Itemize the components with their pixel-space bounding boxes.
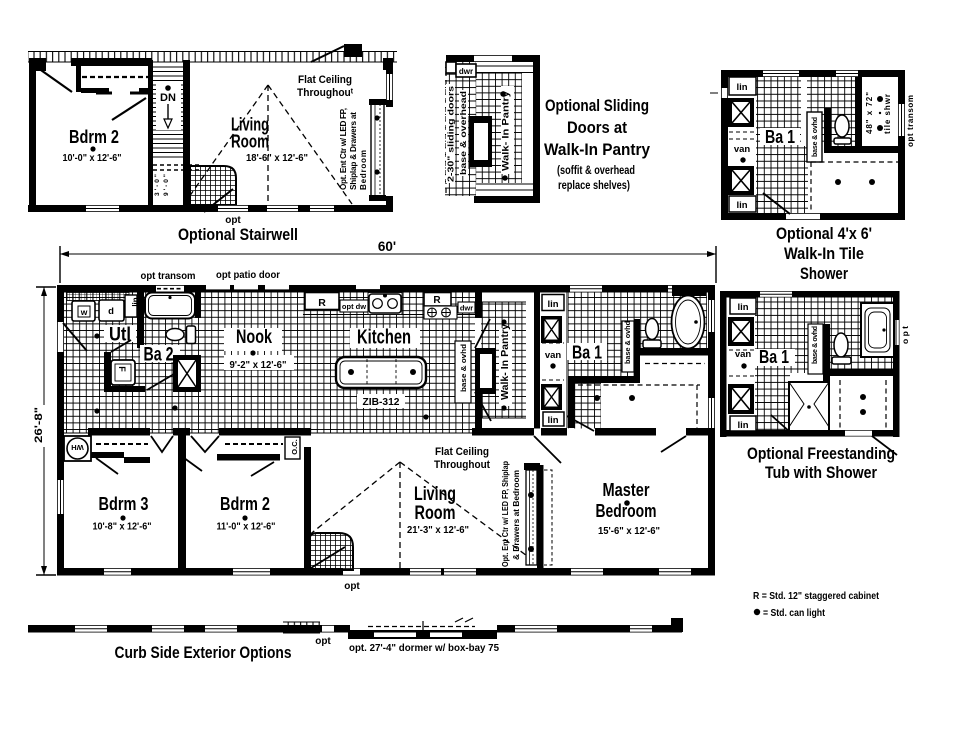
- svg-text:base & ovhd: base & ovhd: [812, 117, 819, 157]
- svg-text:Ba 1: Ba 1: [765, 127, 795, 147]
- svg-text:60': 60': [378, 239, 396, 254]
- svg-text:9'-0": 9'-0": [163, 174, 170, 196]
- svg-text:9'-2" x 12'-6": 9'-2" x 12'-6": [230, 360, 287, 371]
- svg-text:= Std. can light: = Std. can light: [763, 607, 825, 619]
- svg-text:base & ovhd: base & ovhd: [625, 321, 632, 364]
- svg-text:Ba 1: Ba 1: [572, 343, 602, 363]
- svg-text:Optional Freestanding: Optional Freestanding: [747, 444, 895, 463]
- svg-text:R: R: [318, 297, 326, 309]
- svg-text:26'-8": 26'-8": [33, 407, 45, 443]
- svg-text:F: F: [117, 366, 127, 372]
- svg-text:Master: Master: [603, 479, 650, 500]
- svg-text:ZIB-312: ZIB-312: [363, 396, 400, 408]
- svg-text:lin: lin: [547, 299, 558, 310]
- svg-text:Ba 1: Ba 1: [759, 347, 789, 367]
- svg-text:Kitchen: Kitchen: [357, 327, 411, 349]
- svg-text:Bdrm 2: Bdrm 2: [220, 493, 270, 514]
- svg-text:18'-6" x 12'-6": 18'-6" x 12'-6": [246, 153, 308, 164]
- svg-text:opt: opt: [225, 215, 241, 226]
- svg-text:tile shwr: tile shwr: [883, 94, 892, 134]
- svg-text:dwr: dwr: [459, 67, 473, 76]
- svg-text:replace shelves): replace shelves): [558, 180, 630, 192]
- svg-text:opt transom: opt transom: [141, 271, 196, 282]
- svg-text:d: d: [108, 306, 114, 317]
- svg-text:& Drawers at Bedroom: & Drawers at Bedroom: [512, 470, 521, 560]
- svg-text:Ba 2: Ba 2: [144, 345, 174, 366]
- svg-text:lin: lin: [736, 82, 747, 93]
- svg-text:Bedroom: Bedroom: [596, 500, 657, 521]
- svg-text:w: w: [80, 307, 88, 317]
- svg-text:Room: Room: [415, 503, 456, 524]
- svg-text:(soffit & overhead: (soffit & overhead: [557, 165, 635, 177]
- svg-text:opt patio door: opt patio door: [216, 270, 280, 281]
- svg-text:Throughouᵗ: Throughouᵗ: [297, 87, 354, 99]
- svg-text:Living: Living: [414, 484, 456, 505]
- svg-text:lin: lin: [736, 200, 747, 211]
- svg-text:21'-3" x 12'-6": 21'-3" x 12'-6": [407, 525, 469, 536]
- svg-text:Bedroom: Bedroom: [359, 150, 368, 190]
- svg-text:Optional Stairwell: Optional Stairwell: [178, 226, 298, 244]
- svg-text:Walk-In Tile: Walk-In Tile: [784, 245, 864, 263]
- svg-text:dwr: dwr: [460, 304, 473, 313]
- svg-text:Optional Sliding: Optional Sliding: [545, 97, 649, 115]
- svg-text:2-30" sliding doors: 2-30" sliding doors: [447, 85, 456, 182]
- svg-text:Opt. Ent Ctr w/ LED FP, Shipla: Opt. Ent Ctr w/ LED FP, Shiplap: [501, 461, 510, 567]
- svg-text:Curb Side Exterior Options: Curb Side Exterior Options: [115, 644, 292, 662]
- svg-text:Walk- In Pantry: Walk- In Pantry: [501, 90, 512, 171]
- svg-text:Opt. Ent Ctr w/ LED FP,: Opt. Ent Ctr w/ LED FP,: [339, 108, 348, 190]
- svg-text:Bdrm 2: Bdrm 2: [69, 127, 119, 147]
- svg-text:Doors at: Doors at: [567, 119, 627, 137]
- svg-text:Bdrm 3: Bdrm 3: [99, 493, 149, 514]
- svg-text:WH: WH: [71, 443, 84, 452]
- svg-text:11'-0" x 12'-6": 11'-0" x 12'-6": [217, 522, 276, 533]
- svg-text:Room: Room: [231, 131, 269, 152]
- svg-text:lin: lin: [737, 420, 748, 431]
- svg-text:van: van: [734, 144, 751, 155]
- svg-text:Flat Ceiling: Flat Ceiling: [298, 74, 352, 86]
- svg-text:opt transom: opt transom: [906, 95, 915, 147]
- svg-text:opt: opt: [315, 636, 331, 647]
- svg-text:van: van: [735, 349, 752, 360]
- svg-text:opt dw: opt dw: [342, 302, 366, 311]
- svg-text:lin: lin: [547, 415, 558, 426]
- svg-text:base & ovhd: base & ovhd: [812, 326, 819, 364]
- svg-text:base & ovhd: base & ovhd: [459, 344, 468, 392]
- svg-text:Shower: Shower: [800, 265, 848, 283]
- svg-text:van: van: [545, 350, 562, 361]
- svg-text:Shiplap & Drawers at: Shiplap & Drawers at: [349, 112, 358, 190]
- svg-text:Optional 4'x 6': Optional 4'x 6': [776, 225, 872, 243]
- svg-text:DN: DN: [160, 92, 176, 104]
- svg-text:base & overhead: base & overhead: [459, 91, 468, 175]
- svg-text:O.C.: O.C.: [290, 439, 299, 454]
- svg-text:opt: opt: [344, 581, 360, 592]
- svg-text:lin: lin: [737, 302, 748, 313]
- svg-text:Nook: Nook: [236, 327, 272, 348]
- svg-text:15'-6" x 12'-6": 15'-6" x 12'-6": [598, 526, 660, 537]
- svg-text:R: R: [433, 295, 441, 306]
- svg-text:3'-0": 3'-0": [154, 174, 161, 196]
- svg-text:10'-0" x 12'-6": 10'-0" x 12'-6": [63, 153, 122, 164]
- svg-text:R = Std. 12" staggered cabinet: R = Std. 12" staggered cabinet: [753, 590, 879, 602]
- svg-text:Walk- In Pantry: Walk- In Pantry: [500, 324, 511, 400]
- svg-text:Flat Ceiling: Flat Ceiling: [435, 446, 489, 458]
- svg-text:Walk-In Pantry: Walk-In Pantry: [544, 141, 651, 159]
- svg-text:48" x 72": 48" x 72": [865, 92, 874, 134]
- svg-text:10'-8" x 12'-6": 10'-8" x 12'-6": [93, 522, 152, 533]
- svg-text:opt: opt: [900, 326, 910, 344]
- svg-text:opt. 27'-4" dormer w/ box-bay: opt. 27'-4" dormer w/ box-bay 75: [349, 643, 499, 654]
- svg-text:Tub with Shower: Tub with Shower: [765, 463, 877, 482]
- svg-text:Throughout: Throughout: [434, 459, 490, 471]
